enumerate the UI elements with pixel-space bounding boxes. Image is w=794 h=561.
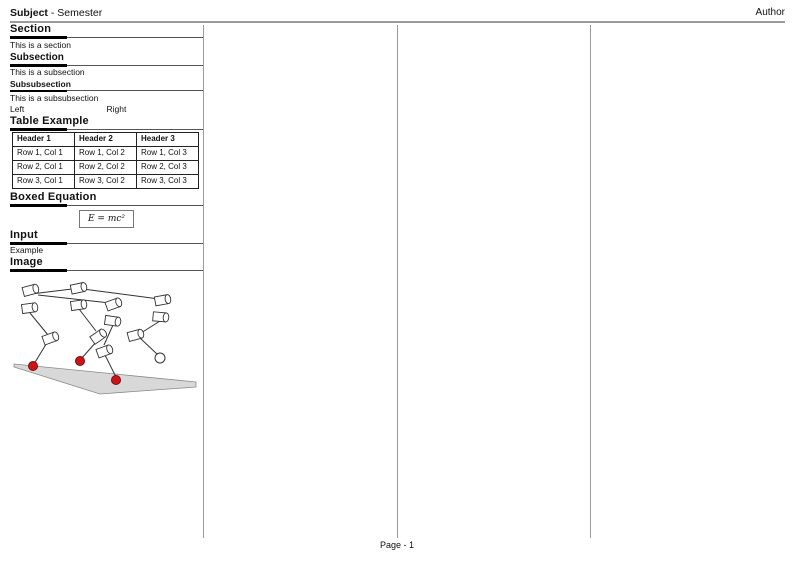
table-cell: Row 3, Col 3 — [137, 174, 199, 188]
header-title: Subject - Semester — [10, 7, 102, 19]
table-cell: Row 2, Col 2 — [75, 160, 137, 174]
table-cell: Row 3, Col 2 — [75, 174, 137, 188]
content-column: Section This is a section Subsection Thi… — [10, 24, 203, 403]
swing-foot-ball — [155, 353, 165, 363]
linkage-segment — [30, 313, 48, 335]
right-label: Right — [107, 105, 204, 114]
joint-cylinder — [70, 299, 87, 310]
foot-contact-point — [76, 357, 85, 366]
ground-plane — [14, 364, 196, 394]
column-separator-3 — [590, 25, 591, 538]
input-rule — [10, 241, 203, 244]
header-semester: - Semester — [51, 7, 102, 19]
table-header-row: Header 1Header 2Header 3 — [13, 132, 199, 146]
header-subject: Subject — [10, 7, 48, 19]
section-rule — [10, 35, 203, 38]
table-cell: Row 2, Col 1 — [13, 160, 75, 174]
foot-contact-point — [112, 376, 121, 385]
section-body: This is a section — [10, 41, 203, 50]
table-cell: Row 1, Col 1 — [13, 146, 75, 160]
robot-linkage-figure — [10, 272, 203, 398]
example-table: Header 1Header 2Header 3Row 1, Col 1Row … — [12, 132, 199, 189]
table-cell: Row 3, Col 1 — [13, 174, 75, 188]
input-heading: Input — [10, 230, 203, 241]
table-example-rule — [10, 127, 203, 130]
subsubsection-body: This is a subsubsection — [10, 94, 203, 103]
joint-cylinder — [70, 282, 87, 294]
linkage-segment — [141, 321, 160, 333]
input-body: Example — [10, 246, 203, 255]
two-column-demo: Left Right — [10, 105, 203, 114]
joint-cylinder — [22, 284, 40, 297]
table-example-heading: Table Example — [10, 116, 203, 127]
section-heading: Section — [10, 24, 203, 35]
table-header-cell: Header 2 — [75, 132, 137, 146]
boxed-equation-rule — [10, 203, 203, 206]
subsection-heading: Subsection — [10, 52, 203, 63]
subsubsection-heading: Subsubsection — [10, 79, 203, 89]
boxed-equation: E = mc² — [79, 210, 134, 228]
joint-cylinder — [154, 294, 171, 306]
joint-cylinder — [96, 344, 114, 358]
left-label: Left — [10, 105, 107, 114]
page-number: Page - 1 — [0, 540, 794, 550]
table-row: Row 3, Col 1Row 3, Col 2Row 3, Col 3 — [13, 174, 199, 188]
subsection-body: This is a subsection — [10, 68, 203, 77]
table-row: Row 1, Col 1Row 1, Col 2Row 1, Col 3 — [13, 146, 199, 160]
subsection-rule — [10, 63, 203, 66]
column-separator-2 — [397, 25, 398, 538]
table-cell: Row 1, Col 3 — [137, 146, 199, 160]
subsubsection-rule — [10, 89, 203, 91]
foot-contact-point — [29, 362, 38, 371]
table-cell: Row 1, Col 2 — [75, 146, 137, 160]
linkage-segment — [79, 309, 96, 331]
joint-cylinder — [21, 302, 38, 313]
linkage-segment — [83, 289, 159, 299]
image-heading: Image — [10, 257, 203, 268]
joint-cylinder — [42, 331, 60, 345]
column-separator-1 — [203, 25, 204, 538]
table-header-cell: Header 1 — [13, 132, 75, 146]
table-header-cell: Header 3 — [137, 132, 199, 146]
linkage-segment — [140, 338, 158, 355]
table-row: Row 2, Col 1Row 2, Col 2Row 2, Col 3 — [13, 160, 199, 174]
image-rule — [10, 268, 203, 271]
header-author: Author — [756, 7, 785, 18]
table-cell: Row 2, Col 3 — [137, 160, 199, 174]
document-page: Subject - Semester Author Section This i… — [0, 0, 794, 561]
joint-cylinder — [105, 297, 123, 311]
equation-wrapper: E = mc² — [10, 208, 203, 228]
joint-cylinder — [153, 312, 170, 322]
boxed-equation-heading: Boxed Equation — [10, 192, 203, 203]
header-rule — [10, 21, 785, 23]
figure-wrapper — [10, 272, 203, 403]
joint-cylinder — [104, 315, 121, 326]
